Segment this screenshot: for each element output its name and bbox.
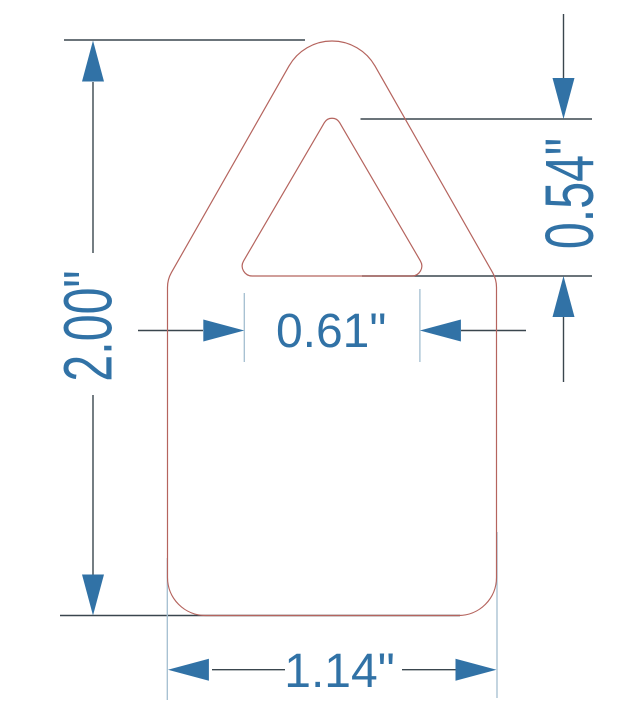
svg-text:0.54": 0.54" — [530, 138, 608, 249]
svg-text:2.00": 2.00" — [49, 270, 127, 381]
svg-text:1.14": 1.14" — [284, 645, 394, 698]
svg-text:0.61": 0.61" — [276, 305, 386, 358]
